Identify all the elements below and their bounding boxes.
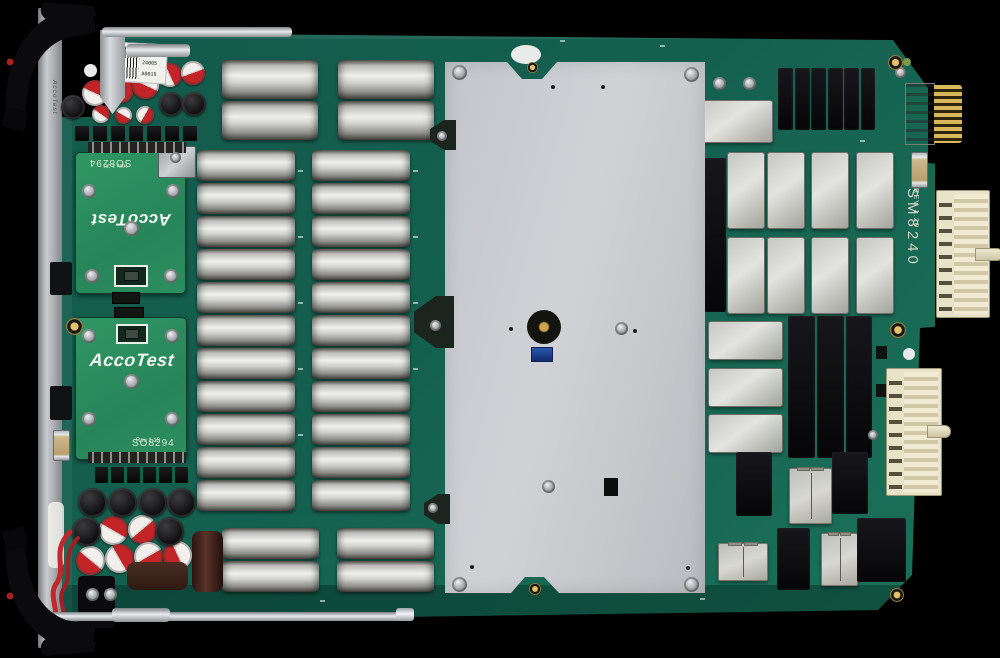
- electrolytic-capacitor: [197, 282, 295, 313]
- silkscreen-mark: [298, 368, 303, 370]
- relay-black: [832, 452, 868, 514]
- relay-black: [861, 68, 875, 130]
- transistor: [95, 467, 108, 483]
- silkscreen-mark: [860, 140, 865, 142]
- relay-black: [788, 316, 815, 458]
- electrolytic-capacitor: [312, 216, 410, 247]
- relay-black: [704, 158, 726, 312]
- fiducial-dot: [903, 348, 915, 360]
- plate-dot: [551, 85, 555, 89]
- relay-black: [817, 316, 844, 458]
- capacitor-brown: [192, 531, 223, 592]
- silkscreen-mark: [298, 434, 303, 436]
- silkscreen-mark: [298, 302, 303, 304]
- transistor: [147, 126, 161, 141]
- chip-die: [124, 271, 139, 282]
- screw: [170, 152, 181, 163]
- accotest-logo: AccoTest: [83, 350, 181, 372]
- led-indicator: [903, 58, 911, 66]
- relay-tab: [728, 542, 742, 546]
- plate-slot: [604, 478, 618, 496]
- relay-black: [736, 452, 772, 516]
- plate-notch-washer: [511, 45, 541, 64]
- ic-chip: [50, 386, 72, 420]
- screw: [124, 374, 139, 389]
- relay-tab: [744, 542, 758, 546]
- screw: [452, 577, 467, 592]
- relay-can-lined: [718, 543, 768, 581]
- relay-seam: [811, 473, 812, 518]
- screw: [164, 269, 178, 283]
- electrolytic-capacitor: [197, 414, 295, 445]
- capacitor-black: [138, 488, 167, 517]
- silkscreen-mark: [298, 236, 303, 238]
- relay-can: [767, 237, 805, 314]
- electrolytic-capacitor: [338, 101, 434, 140]
- screw: [615, 322, 628, 335]
- relay-black: [828, 68, 843, 130]
- silkscreen-mark: [413, 236, 418, 238]
- relay-black: [811, 68, 826, 130]
- transistor: [165, 126, 179, 141]
- capacitor-black: [78, 488, 107, 517]
- blue-component: [531, 347, 553, 362]
- board-connector: [114, 307, 144, 318]
- electrolytic-capacitor: [197, 447, 295, 478]
- screw: [430, 320, 441, 331]
- label-line: 24005: [142, 60, 167, 71]
- screw: [165, 412, 179, 426]
- relay-can-lined: [821, 533, 858, 586]
- relay-black: [857, 518, 906, 582]
- electrolytic-capacitor: [222, 528, 319, 559]
- relay-can-lined: [789, 468, 832, 524]
- plate-dot: [633, 329, 637, 333]
- gold-fingers: [934, 85, 962, 143]
- electrolytic-capacitor: [312, 249, 410, 280]
- relay-can: [697, 100, 773, 143]
- plate-dot: [601, 85, 605, 89]
- chip-die: [125, 329, 139, 339]
- electrolytic-capacitor: [197, 315, 295, 346]
- shield-plate: [445, 62, 705, 593]
- screw: [684, 67, 699, 82]
- silkscreen-mark: [413, 170, 418, 172]
- electrolytic-capacitor: [197, 249, 295, 280]
- silkscreen-mark: [560, 40, 565, 42]
- electrolytic-capacitor: [338, 60, 434, 99]
- silkscreen-mark: [320, 600, 325, 602]
- electrolytic-capacitor: [312, 381, 410, 412]
- transistor: [127, 467, 140, 483]
- silkscreen-mark: [413, 368, 418, 370]
- connector-latch: [975, 248, 1000, 261]
- screw: [868, 430, 878, 440]
- capacitor-black: [108, 488, 137, 517]
- pin-header: [88, 452, 186, 463]
- relay-can: [727, 237, 765, 314]
- capacitor-black: [159, 92, 183, 116]
- relay-can: [856, 237, 894, 314]
- electrolytic-capacitor: [312, 183, 410, 214]
- electrolytic-capacitor: [197, 480, 295, 511]
- daughterboard-chip: [114, 265, 148, 287]
- electrolytic-capacitor: [312, 282, 410, 313]
- capacitor-black: [167, 488, 196, 517]
- mounting-hole: [527, 62, 538, 73]
- mounting-hole: [66, 318, 83, 335]
- transistor: [111, 467, 124, 483]
- screw: [82, 412, 96, 426]
- mounting-hole: [529, 583, 541, 595]
- electrolytic-capacitor: [337, 528, 434, 559]
- electrolytic-capacitor: [222, 60, 318, 99]
- fuse: [53, 430, 70, 461]
- screw: [437, 131, 447, 141]
- screw: [124, 221, 139, 236]
- screw: [452, 65, 467, 80]
- electrolytic-capacitor: [312, 348, 410, 379]
- silkscreen-mark: [700, 598, 705, 600]
- connector-latch: [927, 425, 951, 438]
- relay-black: [795, 68, 810, 130]
- electrolytic-capacitor: [197, 183, 295, 214]
- daughterboard-bottom-label: SO8294Rev 1.13: [84, 438, 180, 451]
- relay-seam: [840, 538, 841, 581]
- screw: [713, 77, 726, 90]
- electrolytic-capacitor: [312, 315, 410, 346]
- capacitor-red-white: [181, 61, 205, 85]
- silkscreen-mark: [298, 170, 303, 172]
- relay-tab: [797, 467, 809, 471]
- electrolytic-capacitor: [197, 381, 295, 412]
- relay-can: [708, 368, 783, 407]
- rod-tip: [396, 608, 414, 621]
- relay-tab: [811, 467, 823, 471]
- electrolytic-capacitor: [312, 447, 410, 478]
- capacitor-black: [155, 517, 184, 546]
- electrolytic-capacitor: [197, 216, 295, 247]
- mounting-hole: [890, 588, 904, 602]
- screw: [542, 480, 555, 493]
- electrolytic-capacitor: [337, 561, 434, 592]
- fuse: [911, 152, 928, 188]
- screw: [428, 503, 438, 513]
- plate-dot: [686, 566, 690, 570]
- electrolytic-capacitor: [312, 480, 410, 511]
- electrolytic-capacitor: [222, 561, 319, 592]
- transistor: [159, 467, 172, 483]
- plate-dot: [509, 327, 513, 331]
- pin-header: [88, 142, 186, 153]
- electrolytic-capacitor: [222, 101, 318, 140]
- relay-tab: [840, 532, 851, 536]
- relay-can: [708, 321, 783, 360]
- plate-dot: [470, 565, 474, 569]
- ejector-handle-top: [0, 0, 140, 135]
- silkscreen-mark: [413, 302, 418, 304]
- relay-can: [811, 152, 849, 229]
- backplane-connector-2: [886, 368, 942, 496]
- relay-can: [811, 237, 849, 314]
- screw: [743, 77, 756, 90]
- capacitor-black: [182, 92, 206, 116]
- screw: [166, 184, 180, 198]
- board-connector: [112, 292, 140, 304]
- relay-can: [856, 152, 894, 229]
- relay-black: [778, 68, 793, 130]
- plate-center-hole: [527, 310, 561, 344]
- relay-black: [777, 528, 810, 590]
- electrolytic-capacitor: [312, 414, 410, 445]
- screw: [165, 329, 179, 343]
- board-model-text: SM8240REV 1.20: [895, 188, 921, 334]
- ejector-handle-bottom: [0, 523, 140, 658]
- connector-pins: [939, 194, 952, 314]
- relay-can: [727, 152, 765, 229]
- transistor: [143, 467, 156, 483]
- electrolytic-capacitor: [197, 150, 295, 181]
- relay-can: [708, 414, 783, 453]
- silkscreen-mark: [660, 45, 665, 47]
- relay-can: [767, 152, 805, 229]
- pcb-photo: AccoTest SO8294Rev 1.20 AccoTest AccoTes…: [0, 0, 1000, 658]
- mounting-hole: [888, 55, 903, 70]
- smd-component: [876, 346, 887, 359]
- screw: [684, 577, 699, 592]
- relay-seam: [743, 547, 744, 577]
- electrolytic-capacitor: [197, 348, 295, 379]
- screw: [82, 184, 96, 198]
- edge-connector-body: [905, 83, 935, 145]
- screw: [85, 269, 99, 283]
- ic-chip: [50, 262, 72, 295]
- electrolytic-capacitor: [312, 150, 410, 181]
- relay-tab: [828, 532, 839, 536]
- transistor: [183, 126, 197, 141]
- backplane-connector-1: [936, 190, 990, 318]
- daughterboard-chip: [116, 324, 148, 344]
- connector-pins: [889, 372, 902, 492]
- transistor: [175, 467, 188, 483]
- screw: [82, 329, 96, 343]
- relay-black: [844, 68, 859, 130]
- label-line: A0015: [141, 71, 166, 82]
